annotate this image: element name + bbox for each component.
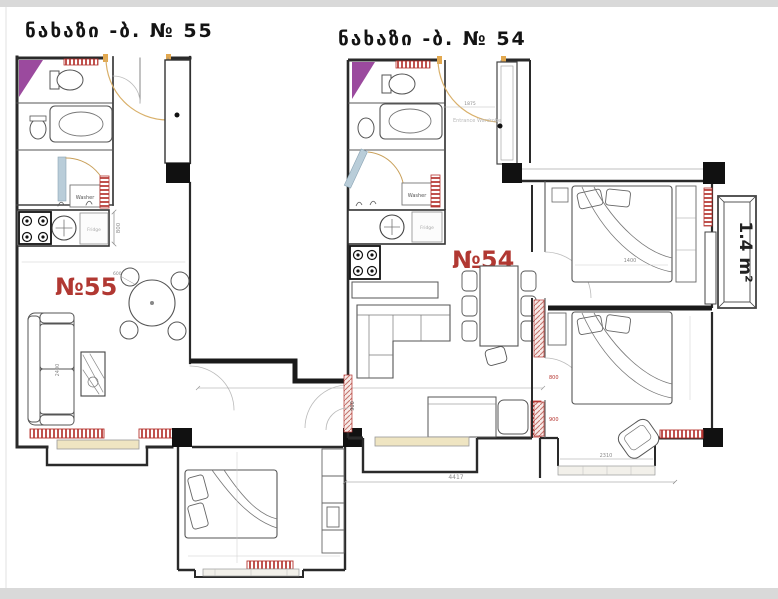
radiator [660, 430, 703, 438]
floor-plan-drawing: ნახაზი -ბ. № 55 ნახაზი -ბ. № 54 [0, 0, 778, 599]
dim-bed-width: 1400 [624, 258, 637, 264]
washer-label: Washer [76, 195, 96, 201]
radiator [704, 188, 712, 226]
hall-wardrobe [497, 62, 517, 164]
desk [428, 397, 496, 437]
fridge-label: Fridge [87, 227, 101, 233]
desk-chair [498, 400, 528, 434]
fridge-label: Fridge [420, 225, 434, 231]
dim-table: 600 [113, 271, 122, 277]
wardrobe-strip [676, 186, 696, 282]
column [703, 428, 723, 447]
sofa [28, 313, 74, 425]
dim-fridge-depth: 800 [116, 222, 122, 233]
apartment-55-title: ნახაზი -ბ. № 55 [25, 20, 214, 42]
pillow [605, 314, 631, 333]
sink-back [30, 116, 46, 121]
hatched-wall [534, 402, 544, 436]
wardrobe-cabinet [322, 449, 344, 553]
glass-door-leaf [58, 157, 66, 201]
dim-total-width: 4417 [448, 474, 463, 481]
shaft-dot [175, 113, 180, 118]
radiator [431, 175, 440, 207]
window-sill [57, 440, 139, 449]
balcony-area-label: 1.4 m² [735, 221, 755, 282]
column [166, 163, 190, 183]
column [172, 428, 192, 447]
shaft [165, 60, 190, 163]
nightstand [552, 188, 568, 202]
window-sill [558, 466, 655, 475]
dim-seg3: 900 [549, 417, 559, 423]
pillow [605, 189, 631, 207]
apartment-54-title: ნახაზი -ბ. № 54 [338, 28, 527, 50]
bathtub-basin [389, 109, 431, 133]
tv-stand [81, 352, 105, 396]
radiator [64, 59, 98, 65]
bottom-border-bar [0, 588, 778, 599]
toilet-icon [389, 74, 415, 94]
top-border-bar [0, 0, 778, 7]
dim-seg2: 800 [549, 375, 559, 381]
washer-label: Washer [408, 193, 428, 199]
balcony-door [705, 232, 716, 304]
table-center [150, 301, 154, 305]
bathtub-basin [59, 112, 103, 136]
column [502, 163, 522, 183]
kitchen-island [352, 282, 438, 298]
bed [185, 470, 277, 538]
dim-door: 900 [350, 401, 356, 411]
sink-icon [30, 119, 46, 139]
sink-icon [358, 118, 374, 138]
radiator [30, 429, 104, 438]
hatched-wall [534, 300, 544, 357]
radiator [100, 176, 109, 208]
window-sill [375, 437, 469, 446]
balcony: 1.4 m² [718, 196, 756, 308]
entrance-wardrobe-label: Entrance Wardrobe [453, 118, 501, 124]
apartment-55-label: №55 [55, 273, 117, 301]
wardrobe-box [548, 313, 566, 345]
dining-table [480, 266, 518, 346]
floor-plan-page: ნახაზი -ბ. № 55 ნახაზი -ბ. № 54 [0, 0, 778, 599]
hall-dot [498, 124, 503, 129]
column [703, 162, 725, 184]
dim-window: 2310 [600, 453, 613, 459]
dim-hall-width: 1875 [464, 101, 476, 107]
toilet-icon [57, 70, 83, 90]
radiator [247, 561, 293, 569]
radiator [396, 61, 430, 68]
dim-sofa-length: 2400 [55, 364, 61, 377]
radiator [139, 429, 175, 438]
